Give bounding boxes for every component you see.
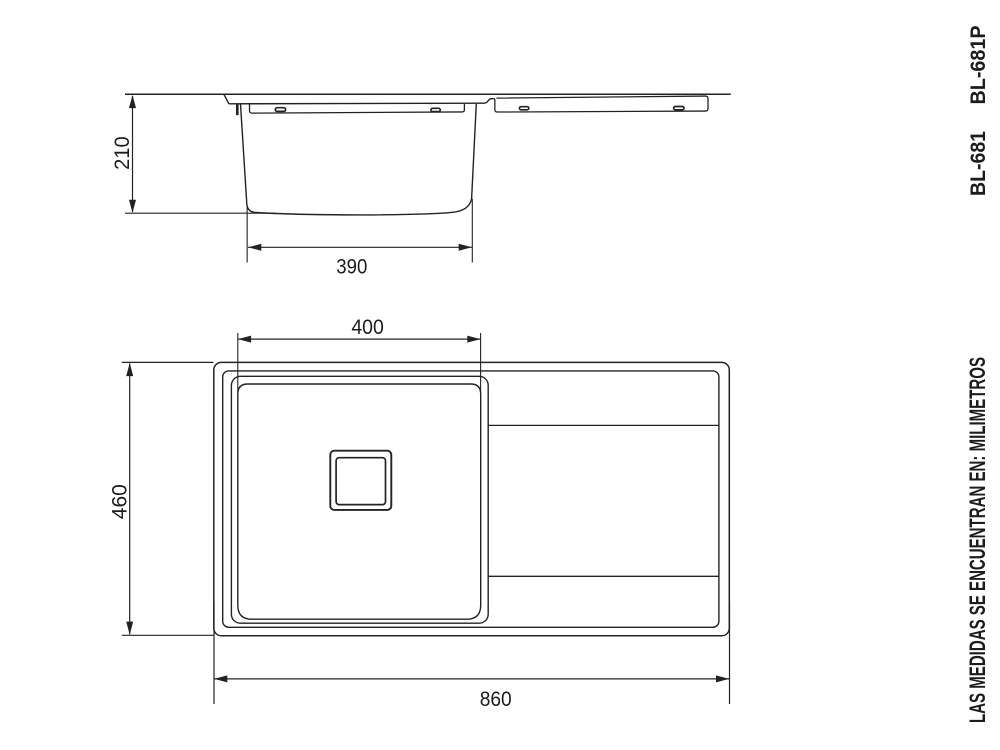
svg-text:BL-681: BL-681 — [967, 131, 990, 196]
svg-text:210: 210 — [110, 136, 134, 170]
svg-text:BL-681P: BL-681P — [967, 26, 990, 105]
svg-text:390: 390 — [336, 255, 367, 279]
svg-text:860: 860 — [480, 687, 512, 711]
svg-text:460: 460 — [108, 484, 132, 519]
svg-text:400: 400 — [351, 315, 384, 339]
svg-text:LAS MEDIDAS SE ENCUENTRAN EN:: LAS MEDIDAS SE ENCUENTRAN EN: MILIMETROS — [965, 357, 990, 723]
